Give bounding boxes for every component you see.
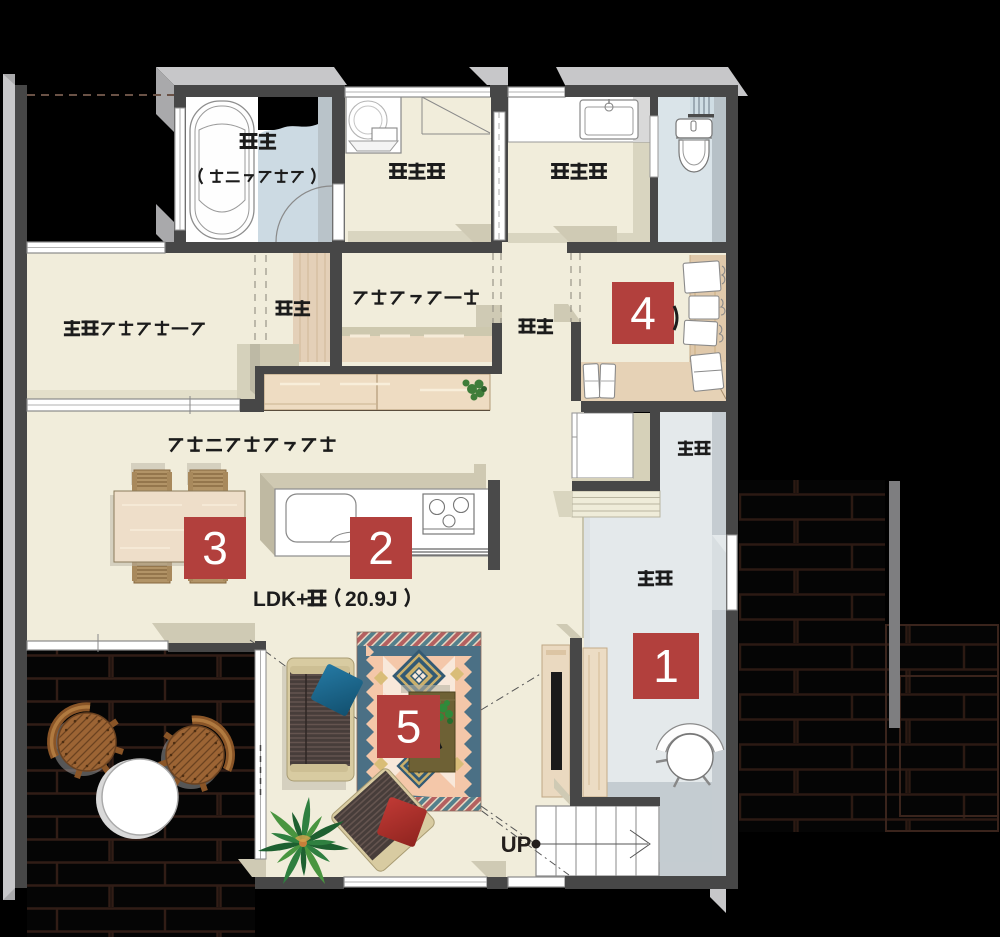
svg-text:5: 5 xyxy=(396,701,422,753)
svg-text:4: 4 xyxy=(630,287,656,339)
svg-text:UP: UP xyxy=(501,832,532,857)
svg-text:20.9J: 20.9J xyxy=(345,588,398,611)
svg-text:3: 3 xyxy=(202,522,228,574)
svg-text:1: 1 xyxy=(653,640,679,692)
svg-text:2: 2 xyxy=(368,522,394,574)
svg-text:LDK+: LDK+ xyxy=(253,588,308,611)
